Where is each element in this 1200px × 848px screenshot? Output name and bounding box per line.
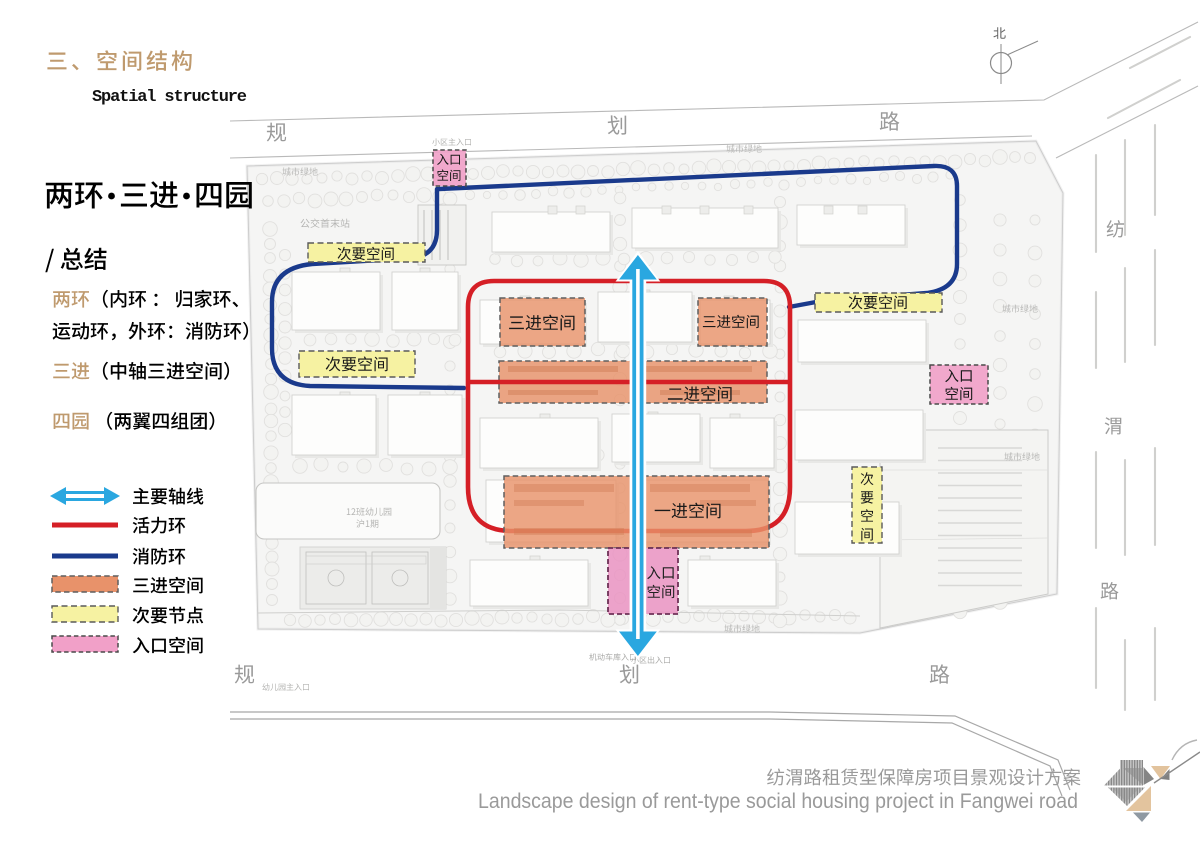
svg-text:Spatial structure: Spatial structure xyxy=(92,88,247,107)
svg-text:Landscape design of rent-type: Landscape design of rent-type social hou… xyxy=(478,790,1078,813)
